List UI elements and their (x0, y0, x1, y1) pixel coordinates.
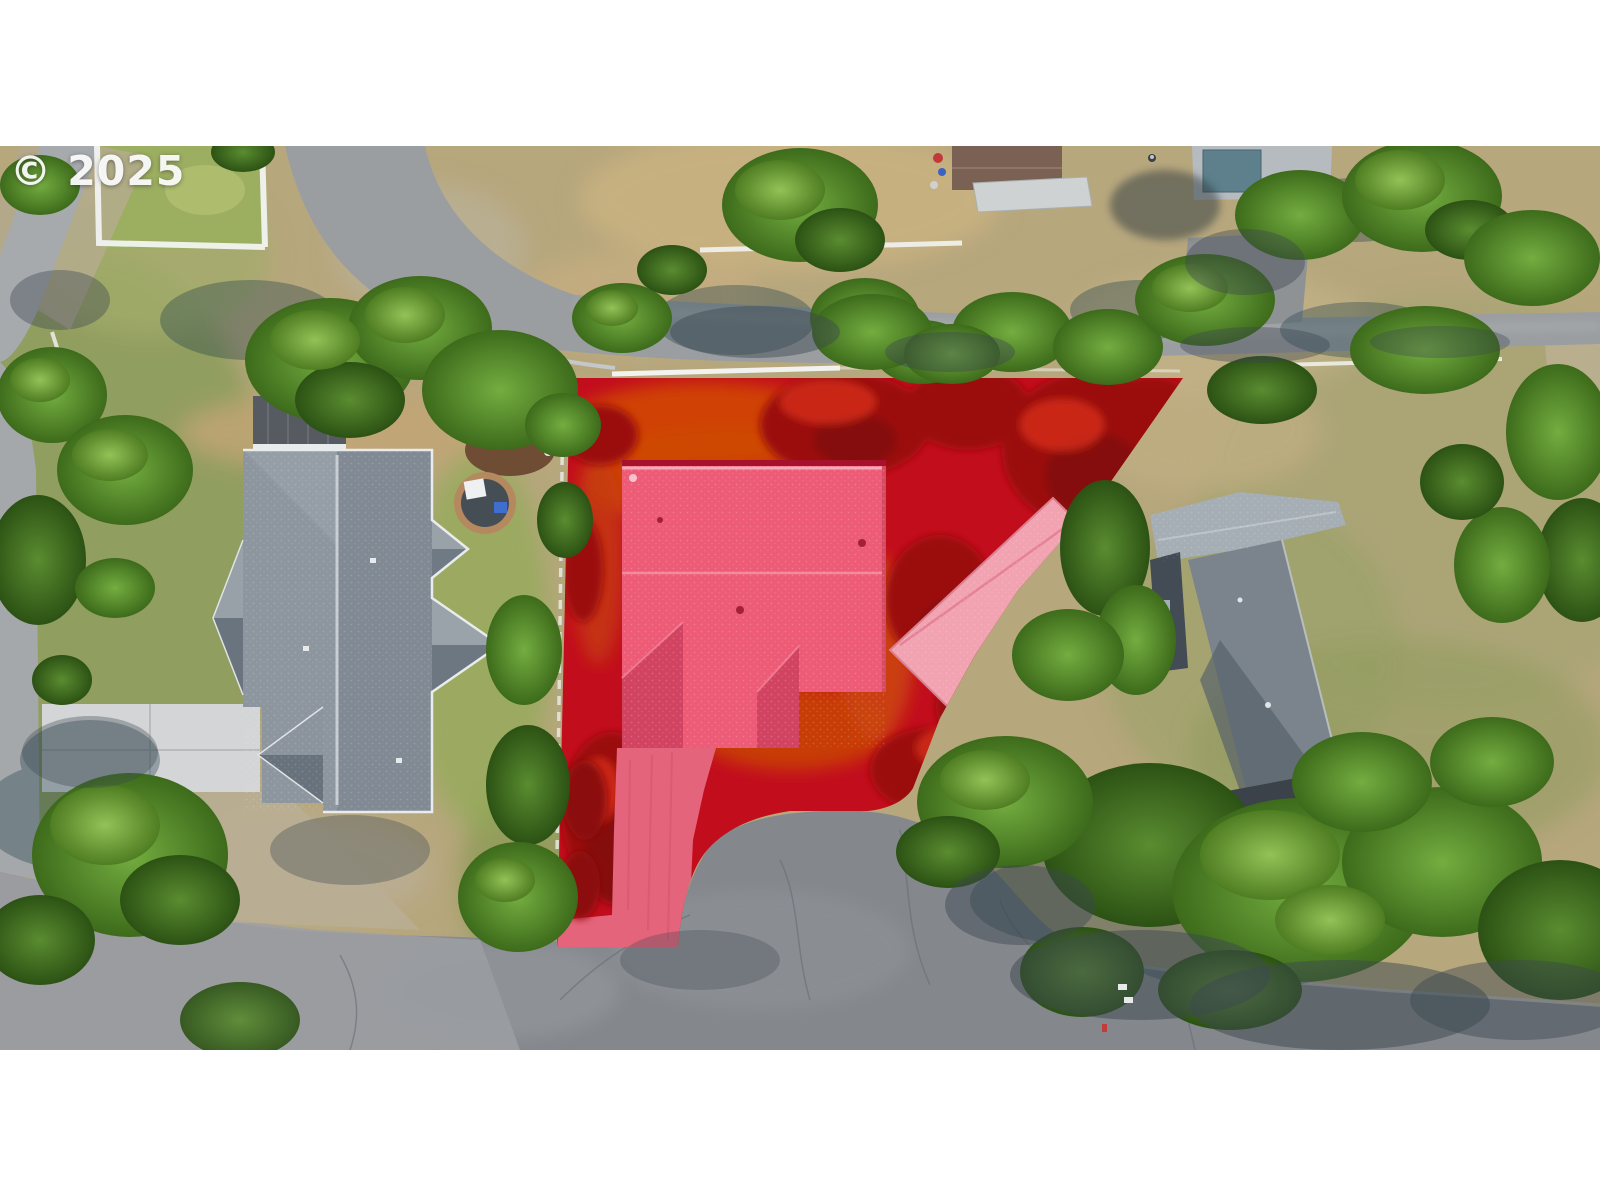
mailbox (1124, 997, 1133, 1003)
aerial-photo: © 2025 (0, 0, 1600, 1200)
letterbox-bottom (0, 1050, 1600, 1200)
subject-house-roof (622, 463, 886, 748)
copyright-watermark: © 2025 (10, 147, 185, 195)
white-carport (973, 177, 1092, 212)
flag (1102, 1024, 1107, 1032)
photo-canvas (0, 146, 1600, 1050)
letterbox-top (0, 0, 1600, 146)
mailbox (1118, 984, 1127, 990)
